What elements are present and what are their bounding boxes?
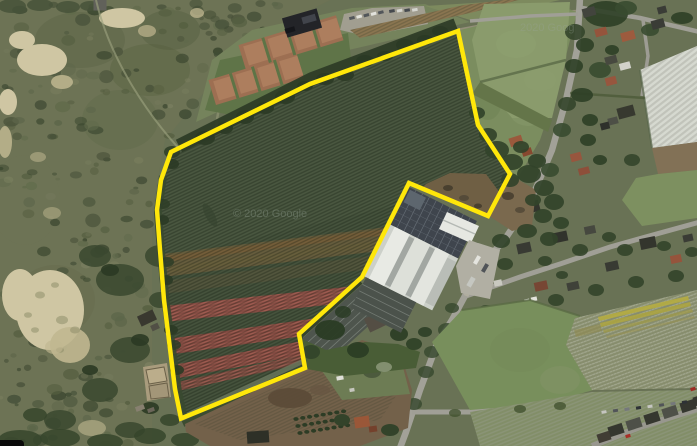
svg-text:2020 Goog: 2020 Goog bbox=[520, 22, 574, 34]
svg-text:© 2020 Google: © 2020 Google bbox=[233, 208, 307, 220]
